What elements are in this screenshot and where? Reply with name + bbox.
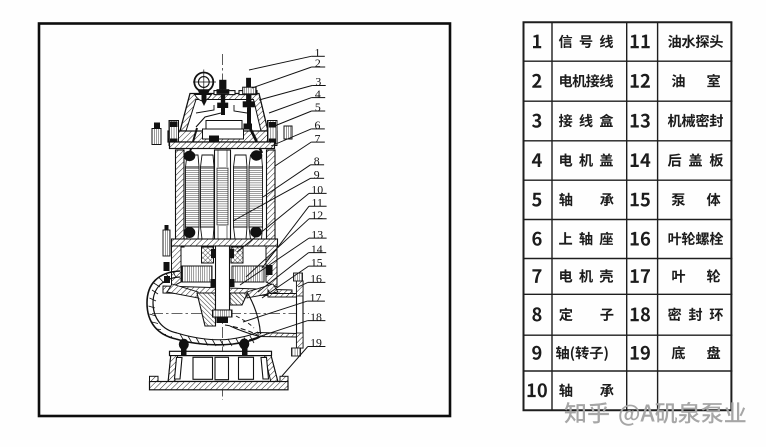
svg-text:18: 18	[310, 310, 322, 324]
svg-text:7: 7	[314, 131, 320, 145]
svg-text:17: 17	[310, 290, 322, 304]
svg-text:15: 15	[311, 255, 323, 269]
svg-text:4: 4	[315, 87, 321, 101]
svg-text:2: 2	[315, 56, 321, 70]
svg-text:14: 14	[311, 242, 323, 256]
svg-text:12: 12	[311, 208, 323, 222]
svg-text:13: 13	[311, 227, 323, 241]
svg-text:16: 16	[310, 272, 322, 286]
svg-text:8: 8	[314, 154, 320, 168]
svg-text:9: 9	[314, 168, 320, 182]
svg-text:19: 19	[310, 336, 322, 350]
svg-text:6: 6	[314, 118, 320, 132]
svg-text:5: 5	[315, 100, 321, 114]
